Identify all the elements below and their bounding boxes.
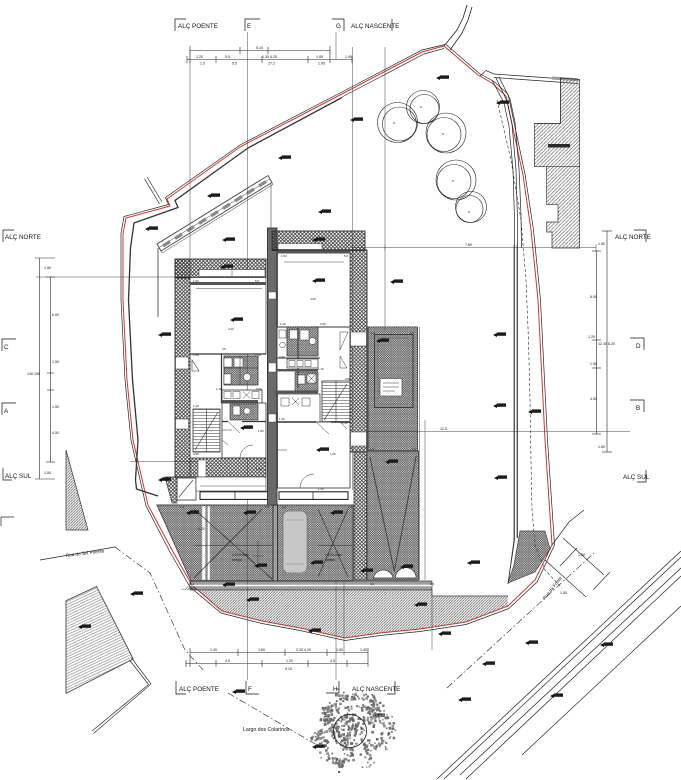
svg-text:1.60: 1.60 bbox=[258, 648, 265, 652]
svg-text:1.10: 1.10 bbox=[216, 387, 222, 391]
svg-text:ALÇ SUL: ALÇ SUL bbox=[623, 474, 650, 481]
svg-text:6.00: 6.00 bbox=[52, 313, 59, 317]
svg-text:1.50: 1.50 bbox=[193, 279, 199, 283]
svg-text:rampa: rampa bbox=[325, 558, 335, 562]
svg-text:ALÇ NASCENTE: ALÇ NASCENTE bbox=[351, 23, 399, 30]
svg-text:1.5: 1.5 bbox=[200, 62, 205, 66]
svg-text:B: B bbox=[636, 405, 640, 412]
svg-text:1.4: 1.4 bbox=[180, 505, 184, 509]
svg-text:1.50: 1.50 bbox=[281, 254, 287, 258]
svg-text:1.0: 1.0 bbox=[371, 331, 375, 335]
svg-text:1.2: 1.2 bbox=[282, 505, 286, 509]
svg-text:o: o bbox=[442, 132, 444, 136]
svg-text:5.5: 5.5 bbox=[255, 279, 259, 283]
svg-text:6.00: 6.00 bbox=[590, 295, 597, 299]
svg-text:1.20: 1.20 bbox=[196, 55, 203, 59]
svg-text:1.50: 1.50 bbox=[52, 360, 59, 364]
svg-text:1.40: 1.40 bbox=[345, 55, 352, 59]
svg-text:D: D bbox=[636, 343, 641, 350]
svg-text:1.2: 1.2 bbox=[370, 447, 374, 451]
svg-text:1.30: 1.30 bbox=[318, 487, 324, 491]
svg-text:0.80: 0.80 bbox=[345, 377, 351, 381]
svg-text:1.50: 1.50 bbox=[44, 471, 51, 475]
svg-text:4.20: 4.20 bbox=[228, 327, 234, 331]
svg-text:4.50: 4.50 bbox=[590, 397, 597, 401]
svg-text:o: o bbox=[393, 121, 395, 125]
svg-text:1.3: 1.3 bbox=[265, 505, 269, 509]
svg-text:o: o bbox=[452, 179, 454, 183]
svg-text:1.0: 1.0 bbox=[410, 331, 414, 335]
svg-text:ALÇ NASCENTE: ALÇ NASCENTE bbox=[352, 686, 400, 693]
svg-text:3.30 4.20: 3.30 4.20 bbox=[296, 648, 311, 652]
svg-text:0.90: 0.90 bbox=[279, 355, 285, 359]
svg-text:1.50: 1.50 bbox=[52, 405, 59, 409]
svg-text:0.9: 0.9 bbox=[430, 582, 434, 586]
svg-text:1.20: 1.20 bbox=[286, 659, 293, 663]
svg-text:rampa: rampa bbox=[232, 558, 242, 562]
svg-text:1.40: 1.40 bbox=[210, 648, 217, 652]
svg-text:G: G bbox=[336, 23, 341, 30]
svg-text:1.25: 1.25 bbox=[330, 452, 336, 456]
svg-text:1.40: 1.40 bbox=[360, 648, 367, 652]
svg-text:12.5: 12.5 bbox=[440, 427, 447, 431]
svg-text:4.5: 4.5 bbox=[330, 659, 335, 663]
svg-text:1.1: 1.1 bbox=[190, 582, 194, 586]
svg-text:5.10: 5.10 bbox=[256, 46, 263, 50]
svg-text:7.60: 7.60 bbox=[465, 243, 472, 247]
svg-text:o: o bbox=[468, 210, 470, 214]
svg-text:5.0: 5.0 bbox=[344, 254, 348, 258]
svg-text:0.90: 0.90 bbox=[256, 387, 262, 391]
svg-text:1.2: 1.2 bbox=[412, 447, 416, 451]
svg-text:5.10: 5.10 bbox=[285, 667, 292, 671]
svg-text:F: F bbox=[248, 686, 252, 693]
svg-text:0.9: 0.9 bbox=[370, 582, 374, 586]
svg-text:4.5: 4.5 bbox=[225, 659, 230, 663]
svg-text:C: C bbox=[4, 344, 9, 351]
svg-text:1.20: 1.20 bbox=[280, 322, 286, 326]
svg-text:12.40 8.20: 12.40 8.20 bbox=[598, 342, 615, 346]
svg-text:4.50: 4.50 bbox=[52, 431, 59, 435]
svg-text:0.95: 0.95 bbox=[193, 452, 199, 456]
svg-text:o: o bbox=[420, 105, 422, 109]
svg-text:Largo dos Colarinos: Largo dos Colarinos bbox=[243, 727, 290, 733]
svg-text:1.50: 1.50 bbox=[258, 429, 264, 433]
svg-text:1.40: 1.40 bbox=[279, 417, 285, 421]
svg-text:5.5: 5.5 bbox=[225, 55, 230, 59]
svg-text:2.00: 2.00 bbox=[320, 322, 326, 326]
svg-text:1.10: 1.10 bbox=[318, 367, 324, 371]
svg-text:1.50: 1.50 bbox=[560, 591, 567, 595]
svg-text:1.10: 1.10 bbox=[342, 421, 348, 425]
svg-text:1.50: 1.50 bbox=[578, 553, 585, 557]
svg-text:E: E bbox=[247, 23, 251, 30]
svg-text:1.20: 1.20 bbox=[198, 527, 205, 531]
svg-text:1.50: 1.50 bbox=[598, 445, 605, 449]
svg-text:5.5: 5.5 bbox=[232, 62, 237, 66]
svg-text:1.95: 1.95 bbox=[316, 55, 323, 59]
svg-text:1.50: 1.50 bbox=[598, 242, 605, 246]
svg-text:ALÇ NORTE: ALÇ NORTE bbox=[5, 234, 41, 241]
svg-text:1.50: 1.50 bbox=[336, 648, 343, 652]
svg-text:1.10: 1.10 bbox=[256, 467, 262, 471]
svg-text:i=12% máx: i=12% máx bbox=[232, 553, 249, 557]
svg-text:1.3: 1.3 bbox=[348, 505, 352, 509]
svg-text:4.20: 4.20 bbox=[310, 297, 316, 301]
svg-text:1.30 4.20: 1.30 4.20 bbox=[262, 55, 277, 59]
svg-text:i=12% máx: i=12% máx bbox=[325, 553, 342, 557]
svg-text:ALÇ SUL: ALÇ SUL bbox=[5, 473, 32, 480]
svg-text:2.10: 2.10 bbox=[255, 353, 261, 357]
svg-text:1.95: 1.95 bbox=[318, 62, 325, 66]
svg-text:ALÇ POENTE: ALÇ POENTE bbox=[179, 686, 219, 693]
svg-text:1.40: 1.40 bbox=[193, 404, 199, 408]
svg-text:1.50: 1.50 bbox=[590, 362, 597, 366]
svg-text:1.50: 1.50 bbox=[44, 266, 51, 270]
svg-text:1.20: 1.20 bbox=[588, 335, 595, 339]
svg-text:1.50: 1.50 bbox=[193, 353, 199, 357]
svg-text:ALÇ NORTE: ALÇ NORTE bbox=[615, 234, 651, 241]
svg-text:4.5: 4.5 bbox=[222, 347, 226, 351]
svg-text:27.2: 27.2 bbox=[268, 62, 275, 66]
svg-text:ALÇ POENTE: ALÇ POENTE bbox=[178, 23, 218, 30]
svg-text:140 150: 140 150 bbox=[27, 372, 40, 376]
